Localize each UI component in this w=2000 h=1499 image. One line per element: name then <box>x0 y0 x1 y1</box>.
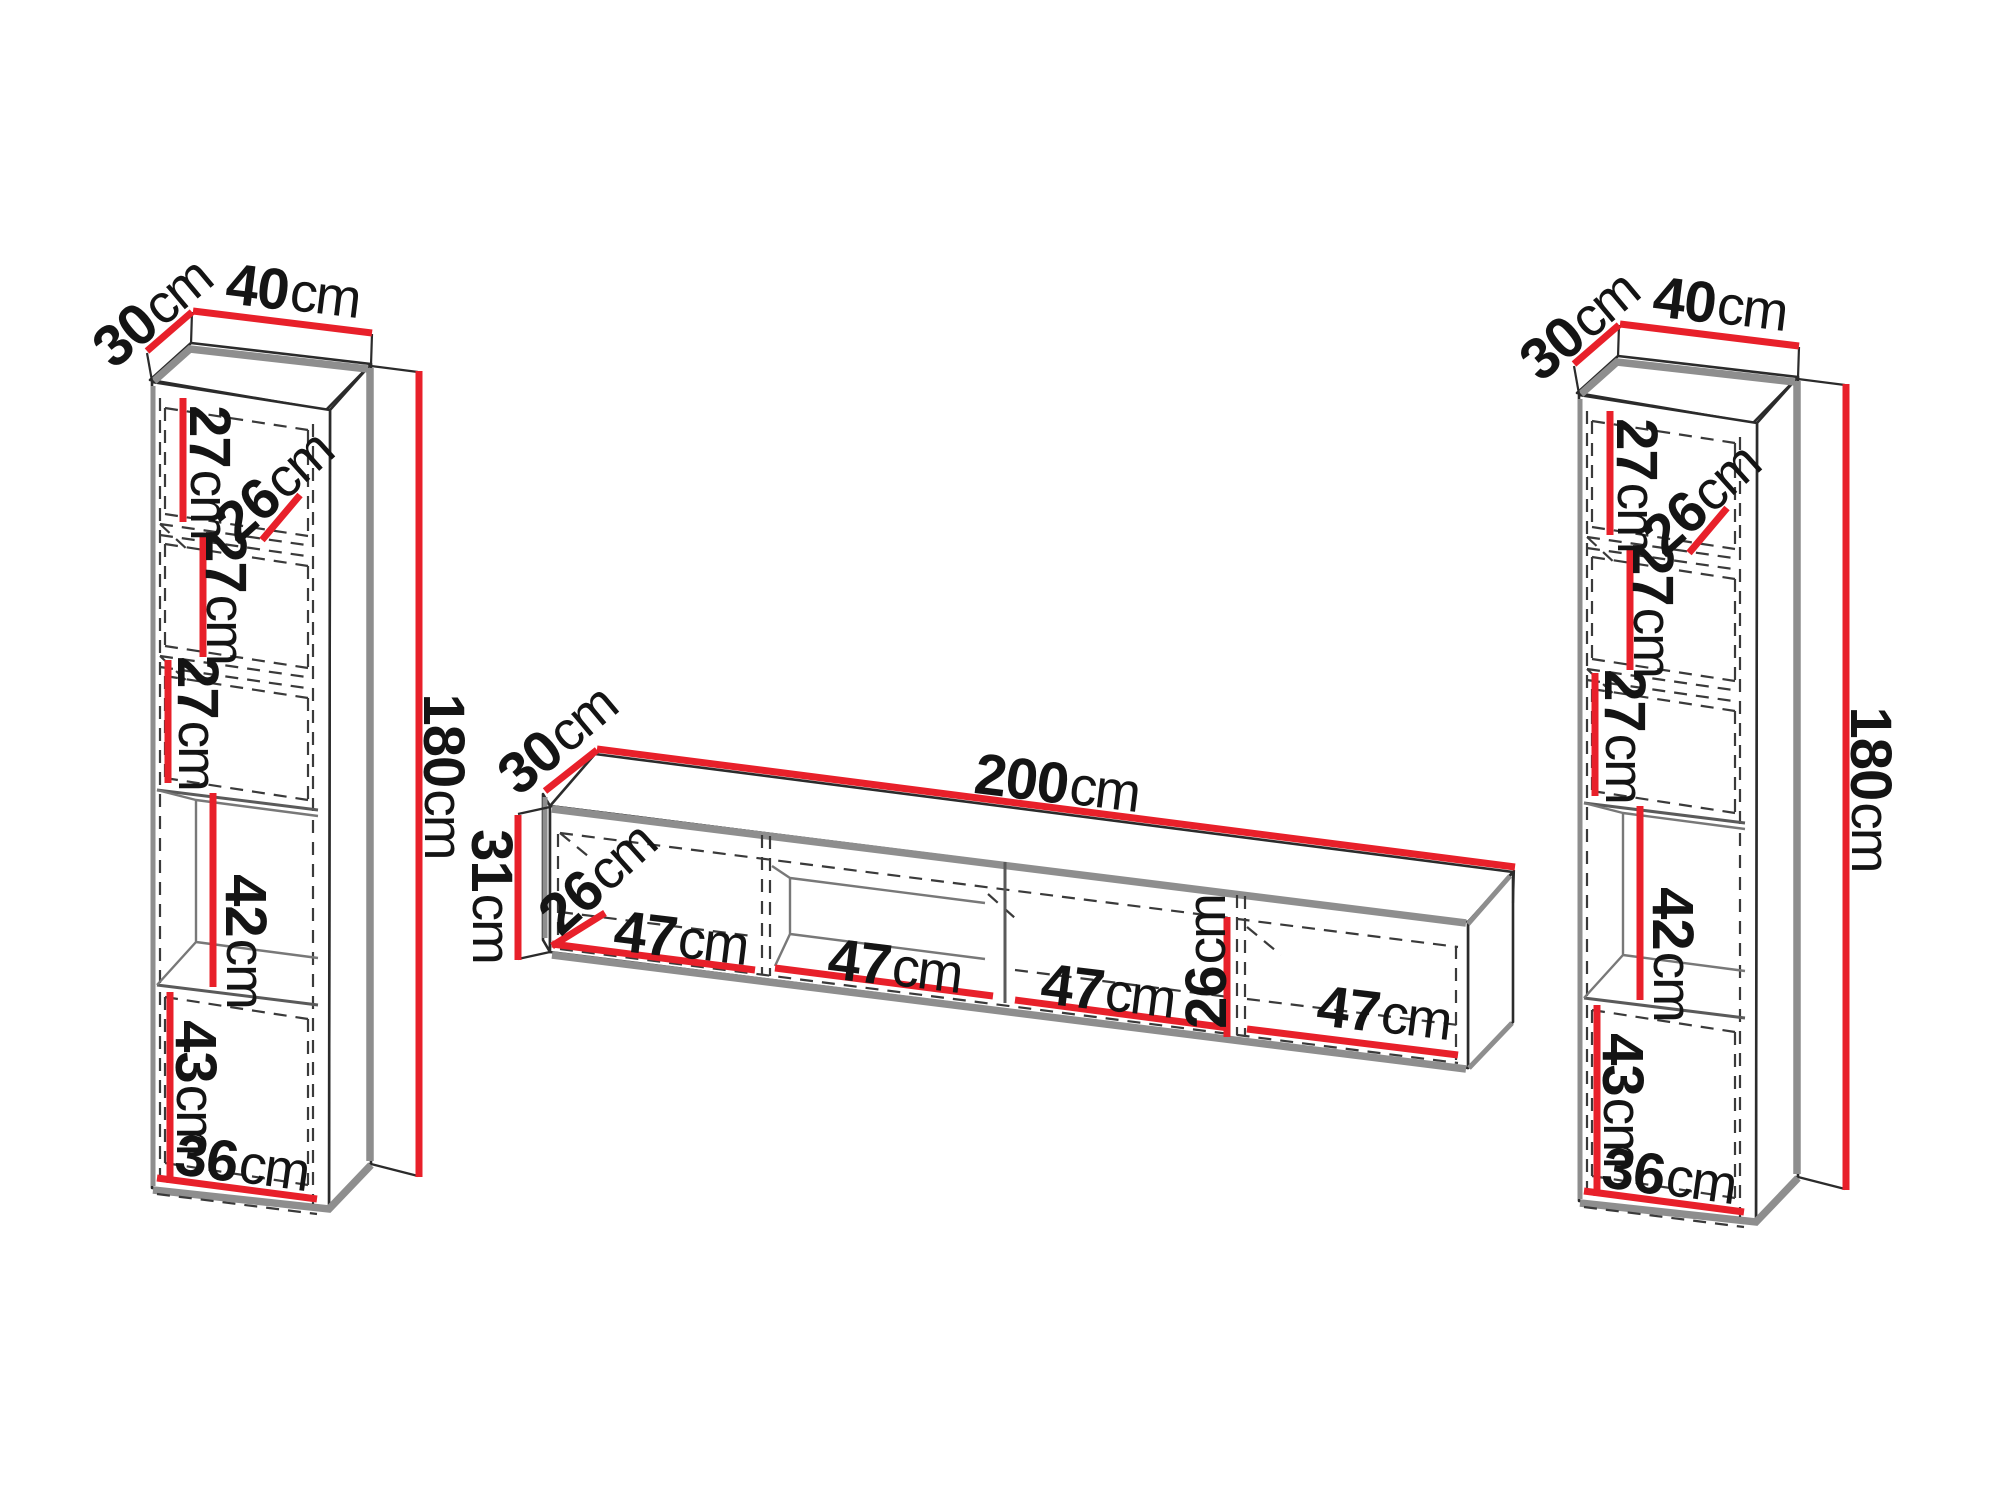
left-cabinet-open-shelf-label: 42cm <box>214 874 279 1008</box>
left-cabinet-shelf-2-label: 27cm <box>194 530 259 664</box>
tv-stand-height-label: 31cm <box>460 829 525 963</box>
right-cabinet: 30cm 40cm 27cm 26cm 27cm 27cm 42cm 43cm … <box>1507 257 1904 1227</box>
left-cabinet-shelf-3-label: 27cm <box>166 656 231 790</box>
right-cabinet-shelf-3-label: 27cm <box>1593 669 1658 803</box>
right-cabinet-shelf-2-label: 27cm <box>1621 543 1686 677</box>
furniture-dimension-diagram: 30cm 40cm 27cm 26cm 27cm 27cm 42cm 43cm … <box>0 0 2000 1499</box>
diagram-canvas: 30cm 40cm 27cm 26cm 27cm 27cm 42cm 43cm … <box>0 0 2000 1499</box>
tv-stand-interior-height-label: 26cm <box>1174 895 1239 1029</box>
right-cabinet-height-label: 180cm <box>1839 706 1904 871</box>
left-cabinet: 30cm 40cm 27cm 26cm 27cm 27cm 42cm 43cm … <box>80 244 477 1214</box>
right-cabinet-open-shelf-label: 42cm <box>1641 887 1706 1021</box>
tv-stand: 30cm 200cm 31cm 26cm 47cm 47cm 47cm 26cm… <box>460 671 1516 1069</box>
